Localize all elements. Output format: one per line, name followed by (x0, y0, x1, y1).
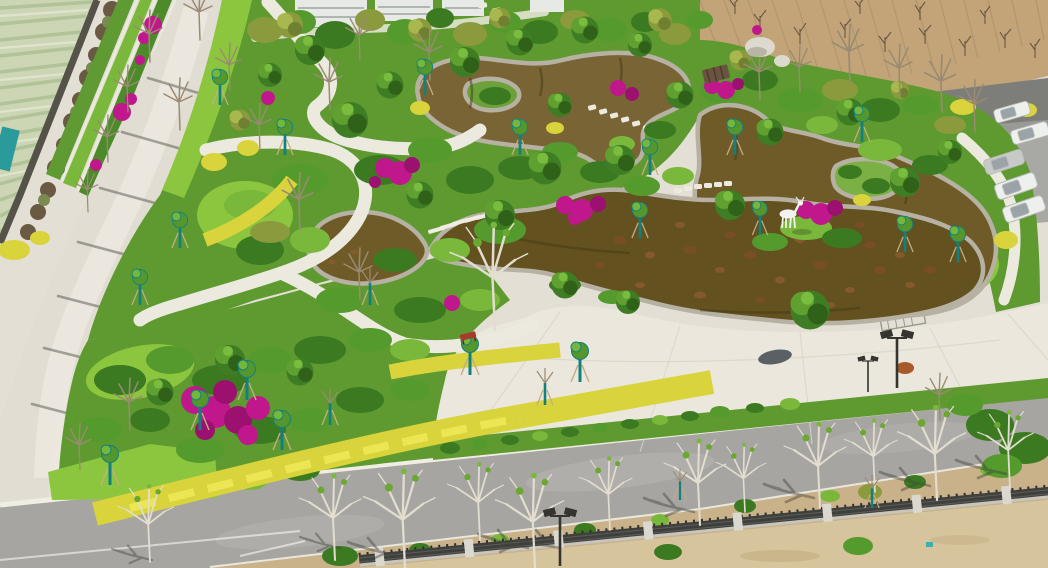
sand-stain (930, 535, 990, 545)
aerial-photo (0, 0, 1048, 568)
scene-svg (0, 0, 1048, 568)
deer-shadow (792, 229, 812, 235)
sand-stain (740, 550, 820, 562)
debris (926, 542, 933, 547)
